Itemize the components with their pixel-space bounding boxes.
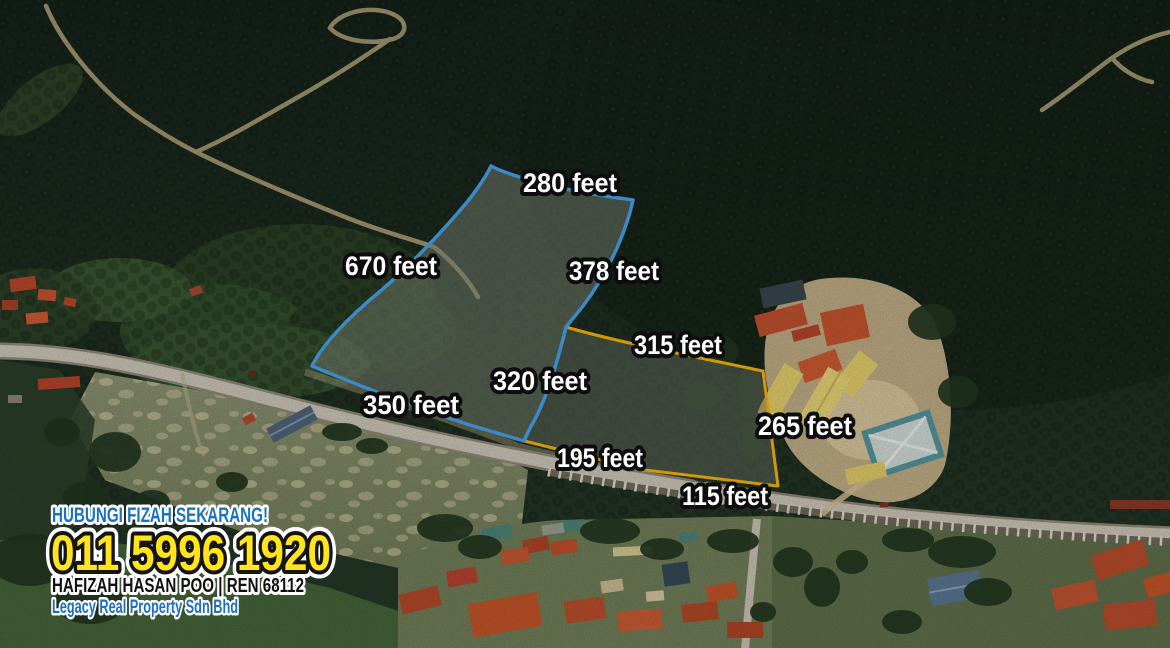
dimension-label-195-feet: 195 feet xyxy=(557,443,643,473)
contact-agency: Legacy Real Property Sdn Bhd xyxy=(52,596,238,618)
dimension-label-265-feet: 265 feet xyxy=(758,411,852,441)
dimension-label-350-feet: 350 feet xyxy=(363,390,459,420)
dimension-label-320-feet: 320 feet xyxy=(493,366,587,396)
contact-agent: HAFIZAH HASAN POO | REN 68112 xyxy=(52,575,304,597)
dimension-label-115-feet: 115 feet xyxy=(682,481,768,511)
contact-headline: HUBUNGI FIZAH SEKARANG! xyxy=(52,504,268,527)
flyer-image: 280 feet 670 feet 378 feet 315 feet 320 … xyxy=(0,0,1170,648)
contact-phone: 011 5996 1920 xyxy=(51,525,331,581)
dimension-label-315-feet: 315 feet xyxy=(634,330,722,360)
dimension-label-378-feet: 378 feet xyxy=(569,256,659,286)
dimension-label-280-feet: 280 feet xyxy=(523,168,617,198)
dimension-label-670-feet: 670 feet xyxy=(345,251,437,281)
satellite-scene: 280 feet 670 feet 378 feet 315 feet 320 … xyxy=(0,0,1170,648)
